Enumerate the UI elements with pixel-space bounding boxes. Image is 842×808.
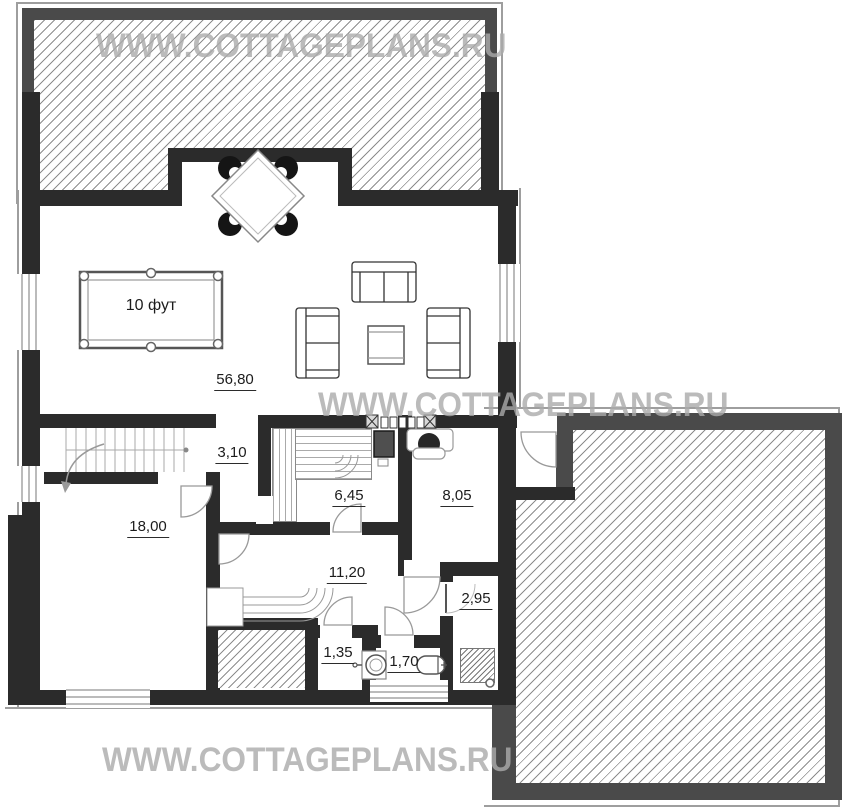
room-area-label-study: 8,05: [440, 487, 473, 507]
room-area-label-closet: 1,35: [321, 644, 354, 664]
sofa: [296, 308, 339, 378]
coffee-table: [368, 326, 404, 364]
room-area-label-living: 56,80: [214, 371, 256, 391]
stairs-direction-arrow: [61, 444, 104, 493]
room-area-label-sauna: 6,45: [332, 487, 365, 507]
sauna-bench-corner: [335, 455, 358, 478]
sofa-set: [296, 262, 470, 378]
shower-drain: [486, 679, 494, 687]
staircase-up: [66, 428, 189, 472]
watermark-middle: WWW.COTTAGEPLANS.RU: [318, 386, 728, 425]
watermark-top: WWW.COTTAGEPLANS.RU: [96, 27, 506, 66]
room-area-label-hall: 3,10: [215, 444, 248, 464]
pool-table-size-label: 10 фут: [124, 297, 179, 317]
desk: [407, 429, 453, 459]
watermark-bottom: WWW.COTTAGEPLANS.RU: [102, 741, 512, 780]
sofa: [427, 308, 470, 378]
sauna-stove: [374, 431, 394, 466]
room-area-label-shower-room: 2,95: [459, 590, 492, 610]
room-area-label-bedroom: 18,00: [127, 518, 169, 538]
room-area-label-bathroom: 1,70: [387, 653, 420, 673]
sofa: [352, 262, 416, 302]
floor-plan: 10 фут 56,80 3,10 6,45 8,05 18,00 11,20 …: [0, 0, 842, 808]
sink-icon: [353, 651, 386, 679]
dining-set: [212, 150, 304, 242]
room-area-label-corridor: 11,20: [327, 564, 367, 584]
staircase-down: [207, 588, 333, 626]
toilet-icon: [417, 656, 447, 674]
